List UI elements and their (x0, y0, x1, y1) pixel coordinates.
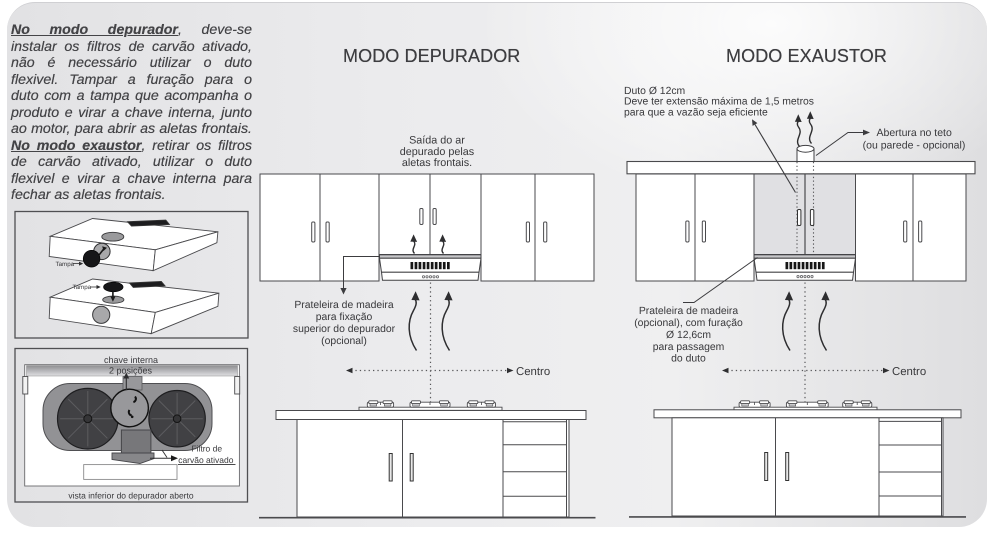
svg-text:chave interna: chave interna (104, 355, 158, 365)
svg-text:Duto Ø 12cm: Duto Ø 12cm (624, 86, 685, 97)
svg-text:(opcional): (opcional) (321, 336, 367, 347)
svg-text:(ou parede - opcional): (ou parede - opcional) (863, 140, 966, 152)
svg-text:Centro: Centro (516, 366, 550, 378)
svg-text:aletas frontais.: aletas frontais. (402, 157, 472, 169)
svg-text:do duto: do duto (671, 354, 706, 365)
svg-text:para passagem: para passagem (653, 342, 725, 353)
svg-text:(opcional), com furação: (opcional), com furação (634, 318, 743, 329)
svg-text:superior do depurador: superior do depurador (293, 324, 396, 335)
svg-text:vista inferior do depurador ab: vista inferior do depurador aberto (68, 491, 193, 501)
svg-text:Saída do ar: Saída do ar (409, 135, 465, 147)
svg-text:Centro: Centro (892, 366, 926, 378)
svg-text:Prateleira de madeira: Prateleira de madeira (639, 306, 739, 317)
svg-text:Prateleira de madeira: Prateleira de madeira (294, 300, 394, 311)
svg-text:depurado pelas: depurado pelas (400, 146, 475, 158)
svg-text:2 posições: 2 posições (109, 365, 153, 375)
svg-text:para fixação: para fixação (316, 312, 373, 323)
svg-text:Deve ter extensão máxima de 1,: Deve ter extensão máxima de 1,5 metros (624, 97, 814, 108)
svg-text:para que a vazão seja eficient: para que a vazão seja eficiente (624, 107, 768, 118)
svg-text:Tampa: Tampa (73, 284, 92, 291)
svg-text:Abertura no teto: Abertura no teto (877, 127, 952, 139)
svg-text:Tampa: Tampa (56, 261, 75, 268)
svg-text:Filtro de: Filtro de (191, 444, 222, 454)
svg-text:Ø 12,6cm: Ø 12,6cm (666, 330, 711, 341)
svg-text:carvão ativado: carvão ativado (178, 455, 234, 465)
